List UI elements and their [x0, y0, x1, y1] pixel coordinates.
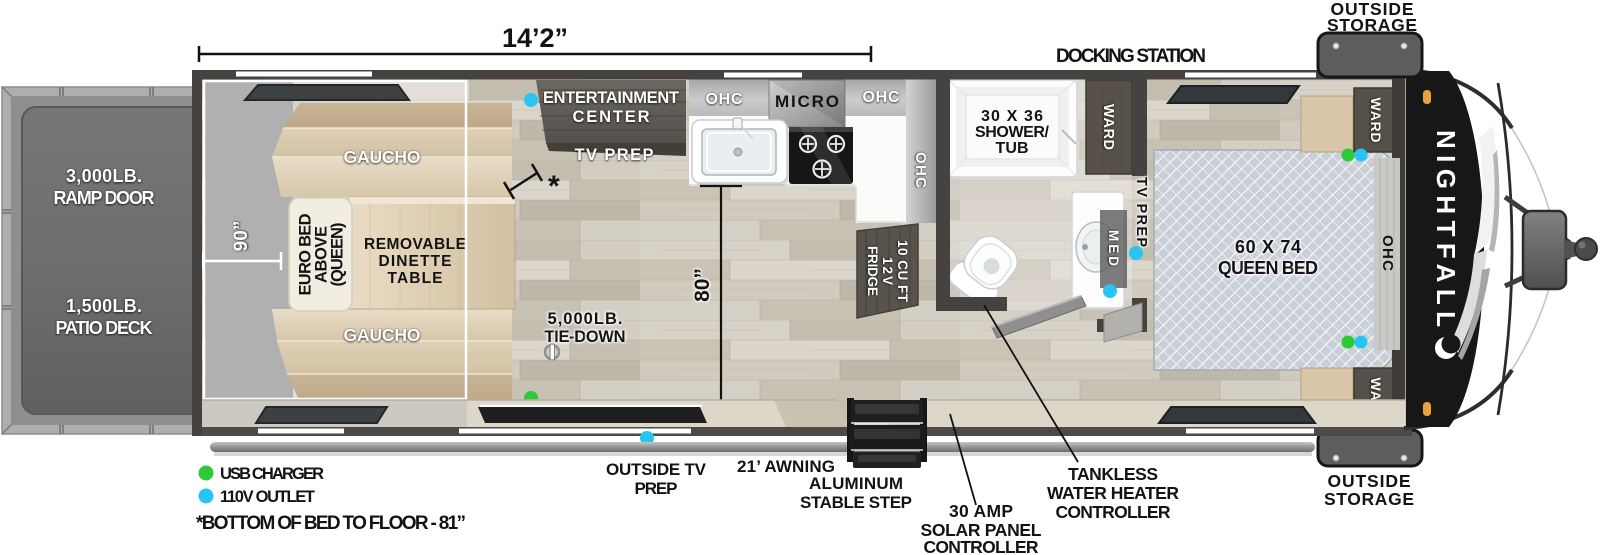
svg-text:60 X 74: 60 X 74: [1235, 237, 1301, 257]
svg-text:12V: 12V: [880, 257, 895, 285]
svg-text:TV PREP: TV PREP: [1133, 177, 1149, 247]
svg-text:TABLE: TABLE: [388, 270, 443, 287]
svg-text:PREP: PREP: [635, 479, 678, 498]
svg-text:PATIO DECK: PATIO DECK: [56, 318, 153, 338]
svg-text:DOCKING STATION: DOCKING STATION: [1056, 46, 1206, 67]
svg-text:WARD: WARD: [1100, 104, 1116, 150]
svg-text:WARD: WARD: [1368, 98, 1384, 143]
svg-text:OUTSIDE: OUTSIDE: [1328, 471, 1411, 491]
svg-text:TUB: TUB: [996, 140, 1029, 157]
svg-text:(QUEEN): (QUEEN): [329, 223, 347, 287]
svg-text:30 AMP: 30 AMP: [949, 501, 1013, 521]
svg-text:OHC: OHC: [912, 152, 929, 188]
svg-text:CONTROLLER: CONTROLLER: [1056, 502, 1171, 522]
svg-text:STABLE STEP: STABLE STEP: [800, 493, 912, 512]
svg-text:TV PREP: TV PREP: [575, 146, 654, 164]
svg-text:WATER HEATER: WATER HEATER: [1047, 483, 1179, 503]
svg-text:80”: 80”: [691, 268, 714, 302]
svg-text:*: *: [548, 170, 560, 203]
svg-text:ALUMINUM: ALUMINUM: [809, 474, 903, 493]
svg-text:*BOTTOM OF BED TO FLOOR - 81”: *BOTTOM OF BED TO FLOOR - 81”: [196, 513, 466, 534]
svg-text:STORAGE: STORAGE: [1324, 489, 1414, 509]
svg-text:CONTROLLER: CONTROLLER: [924, 537, 1039, 555]
svg-text:STORAGE: STORAGE: [1327, 15, 1417, 35]
svg-text:10 CU FT: 10 CU FT: [895, 240, 910, 303]
svg-text:MED: MED: [1106, 230, 1121, 266]
svg-text:OHC: OHC: [706, 91, 743, 108]
svg-text:3,000LB.: 3,000LB.: [66, 166, 142, 186]
svg-text:SHOWER/: SHOWER/: [975, 124, 1050, 141]
svg-text:5,000LB.: 5,000LB.: [548, 310, 623, 328]
svg-text:OUTSIDE TV: OUTSIDE TV: [606, 460, 707, 479]
svg-text:1,500LB.: 1,500LB.: [66, 296, 142, 316]
svg-text:RAMP DOOR: RAMP DOOR: [54, 188, 155, 208]
svg-text:GAUCHO: GAUCHO: [344, 147, 421, 167]
svg-text:ENTERTAINMENT: ENTERTAINMENT: [543, 89, 679, 107]
svg-text:OHC: OHC: [1379, 235, 1396, 271]
svg-text:OHC: OHC: [863, 89, 900, 106]
svg-text:30 X 36: 30 X 36: [981, 108, 1043, 125]
svg-text:NIGHTFALL: NIGHTFALL: [1431, 130, 1461, 328]
svg-text:GAUCHO: GAUCHO: [344, 325, 421, 345]
svg-text:MICRO: MICRO: [775, 92, 839, 111]
svg-text:TIE-DOWN: TIE-DOWN: [545, 328, 626, 346]
svg-text:TANKLESS: TANKLESS: [1068, 464, 1158, 484]
svg-text:DINETTE: DINETTE: [379, 253, 452, 270]
svg-text:QUEEN BED: QUEEN BED: [1218, 258, 1318, 278]
svg-text:FRIDGE: FRIDGE: [865, 246, 880, 296]
svg-text:90”: 90”: [231, 221, 252, 252]
svg-text:REMOVABLE: REMOVABLE: [364, 236, 466, 253]
svg-text:14’2”: 14’2”: [502, 23, 568, 53]
svg-text:USB CHARGER: USB CHARGER: [220, 465, 324, 483]
svg-text:110V OUTLET: 110V OUTLET: [220, 488, 315, 506]
